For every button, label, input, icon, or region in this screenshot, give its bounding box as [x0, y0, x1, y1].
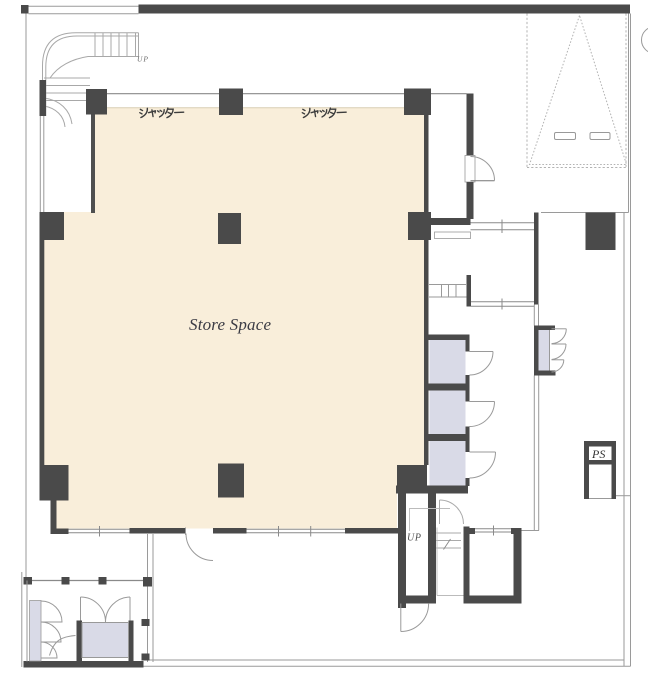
svg-text:Store Space: Store Space — [189, 315, 271, 334]
svg-text:UP: UP — [407, 533, 421, 544]
svg-text:PS: PS — [591, 447, 605, 461]
svg-text:UP: UP — [137, 55, 148, 64]
